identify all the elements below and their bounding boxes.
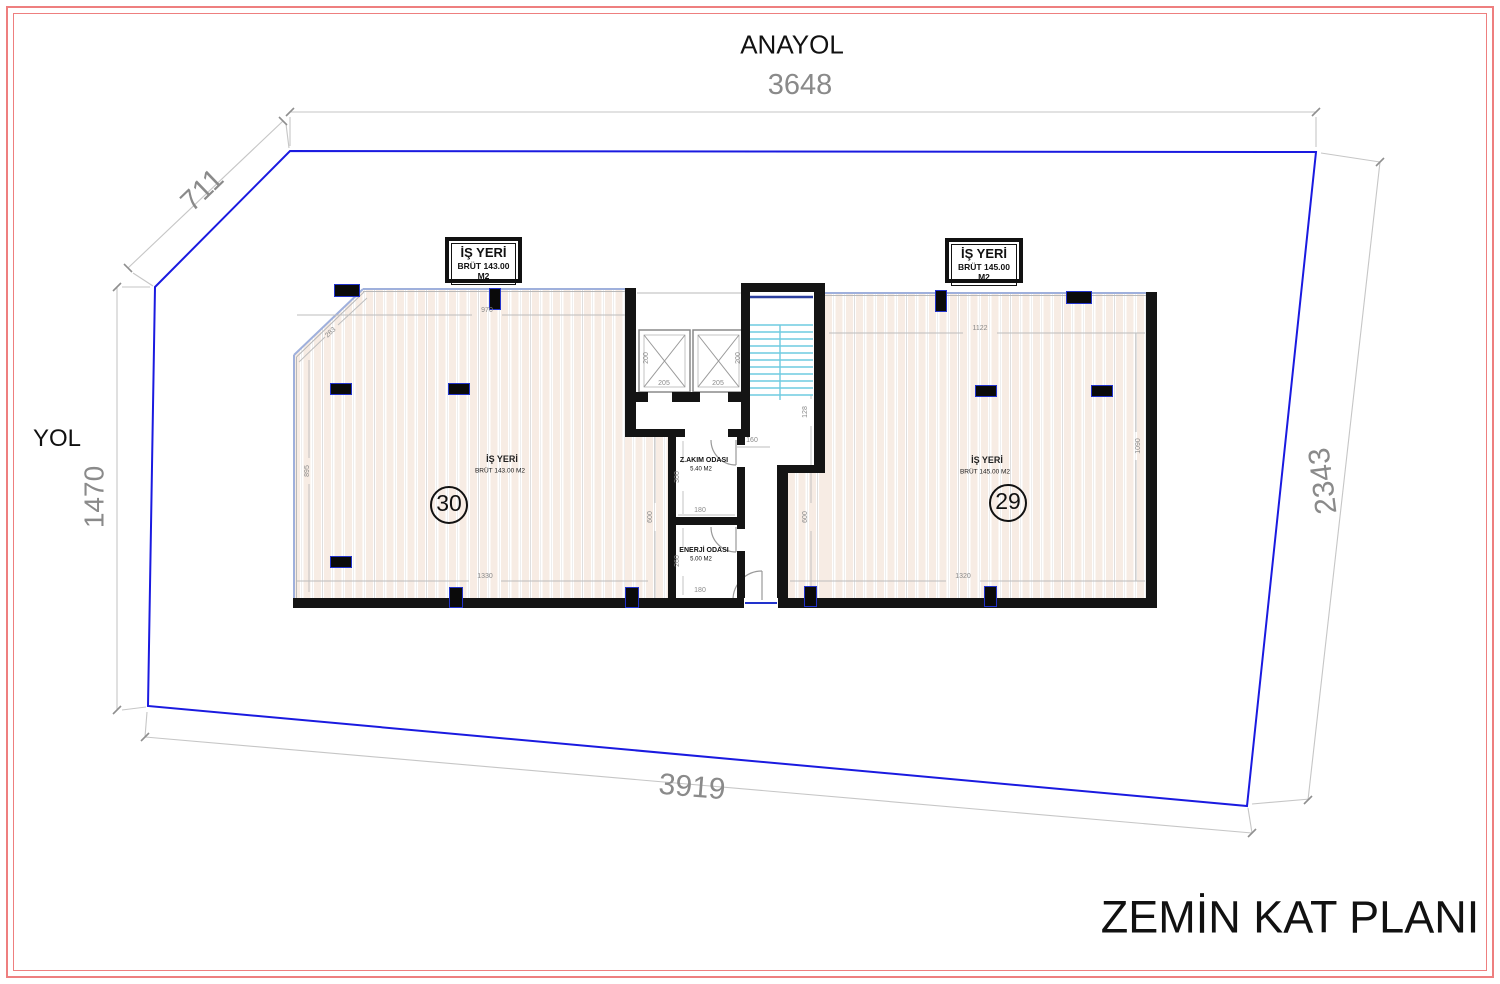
column: [448, 383, 470, 395]
unit30-label: İŞ YERİ: [486, 455, 518, 465]
dim-zakim-height: 300: [674, 471, 682, 483]
site-dim-left: 1470: [80, 466, 111, 528]
staircase: [747, 325, 813, 400]
parcel-boundary: [148, 151, 1316, 806]
column: [984, 586, 997, 607]
dim-unit29-right: 1090: [1135, 438, 1143, 454]
zakim-room-area: 5.40 M2: [690, 467, 712, 474]
unit29-tag-area: BRÜT 145.00 M2: [954, 262, 1014, 282]
unit29-number: 29: [989, 484, 1027, 522]
dim-unit30-core-side: 600: [647, 511, 655, 523]
wall: [728, 392, 745, 402]
wall: [778, 598, 1157, 608]
dim-unit30-bottom: 1330: [477, 573, 493, 581]
wall: [737, 437, 745, 445]
dim-unit30-top: 970: [481, 307, 493, 315]
elevator-shafts: [639, 330, 744, 392]
drawing-title: ZEMİN KAT PLANI: [1101, 892, 1479, 942]
plan-linework: [0, 0, 1500, 984]
dim-enerji-height: 260: [674, 555, 682, 567]
unit29-area: BRÜT 145.00 M2: [960, 468, 1010, 475]
column: [1091, 385, 1113, 397]
unit30-number: 30: [430, 486, 468, 524]
wall: [737, 551, 745, 598]
floor-plan-sheet: ANAYOL 3648 711 YOL 1470 2343 3919 ZEMİN…: [0, 0, 1500, 984]
site-dim-bottom: 3919: [657, 768, 726, 806]
dim-stair: 128: [802, 406, 810, 418]
wall: [1146, 292, 1157, 608]
column: [804, 586, 817, 607]
road-label-left: YOL: [33, 426, 81, 452]
column: [625, 587, 639, 608]
dim-unit29-top: 1122: [972, 325, 987, 333]
dim-unit29-bottom: 1320: [955, 573, 971, 581]
unit30-area: BRÜT 143.00 M2: [475, 467, 525, 474]
dim-elevator1-width: 205: [658, 380, 670, 388]
dim-elevator1-depth: 200: [643, 352, 651, 364]
column: [935, 290, 947, 312]
wall: [814, 283, 825, 465]
unit29-label: İŞ YERİ: [971, 456, 1003, 466]
column: [330, 556, 352, 568]
column: [334, 284, 360, 297]
dim-zakim-width: 180: [694, 507, 706, 515]
column: [975, 385, 997, 397]
column: [1066, 291, 1092, 304]
column: [449, 587, 463, 608]
wall: [293, 598, 744, 608]
dim-elevator2-depth: 200: [735, 352, 743, 364]
zakim-room-name: Z.AKIM ODASI: [680, 457, 728, 465]
dim-unit29-core-side: 600: [802, 511, 810, 523]
enerji-room-area: 5.00 M2: [690, 557, 712, 564]
wall: [668, 517, 745, 525]
dim-unit30-left: 895: [304, 465, 312, 477]
unit30-tag-title: İŞ YERİ: [454, 246, 513, 261]
unit30-tag-box: İŞ YERİ BRÜT 143.00 M2: [445, 237, 522, 283]
unit30-tag-area: BRÜT 143.00 M2: [454, 261, 513, 281]
column: [330, 383, 352, 395]
wall: [625, 288, 636, 437]
dim-elevator2-width: 205: [712, 380, 724, 388]
wall: [625, 392, 648, 402]
wall: [672, 392, 700, 402]
unit29-tag-title: İŞ YERİ: [954, 247, 1014, 262]
wall: [737, 467, 745, 529]
wall: [625, 429, 685, 437]
road-label-top: ANAYOL: [740, 31, 844, 60]
wall: [741, 283, 825, 292]
wall: [777, 465, 788, 598]
enerji-room-name: ENERJİ ODASI: [679, 547, 728, 555]
dim-enerji-width: 180: [694, 587, 706, 595]
unit29-tag-box: İŞ YERİ BRÜT 145.00 M2: [945, 238, 1023, 283]
wall: [741, 292, 750, 437]
dim-corridor: 160: [746, 437, 758, 445]
site-dim-top: 3648: [768, 70, 833, 102]
